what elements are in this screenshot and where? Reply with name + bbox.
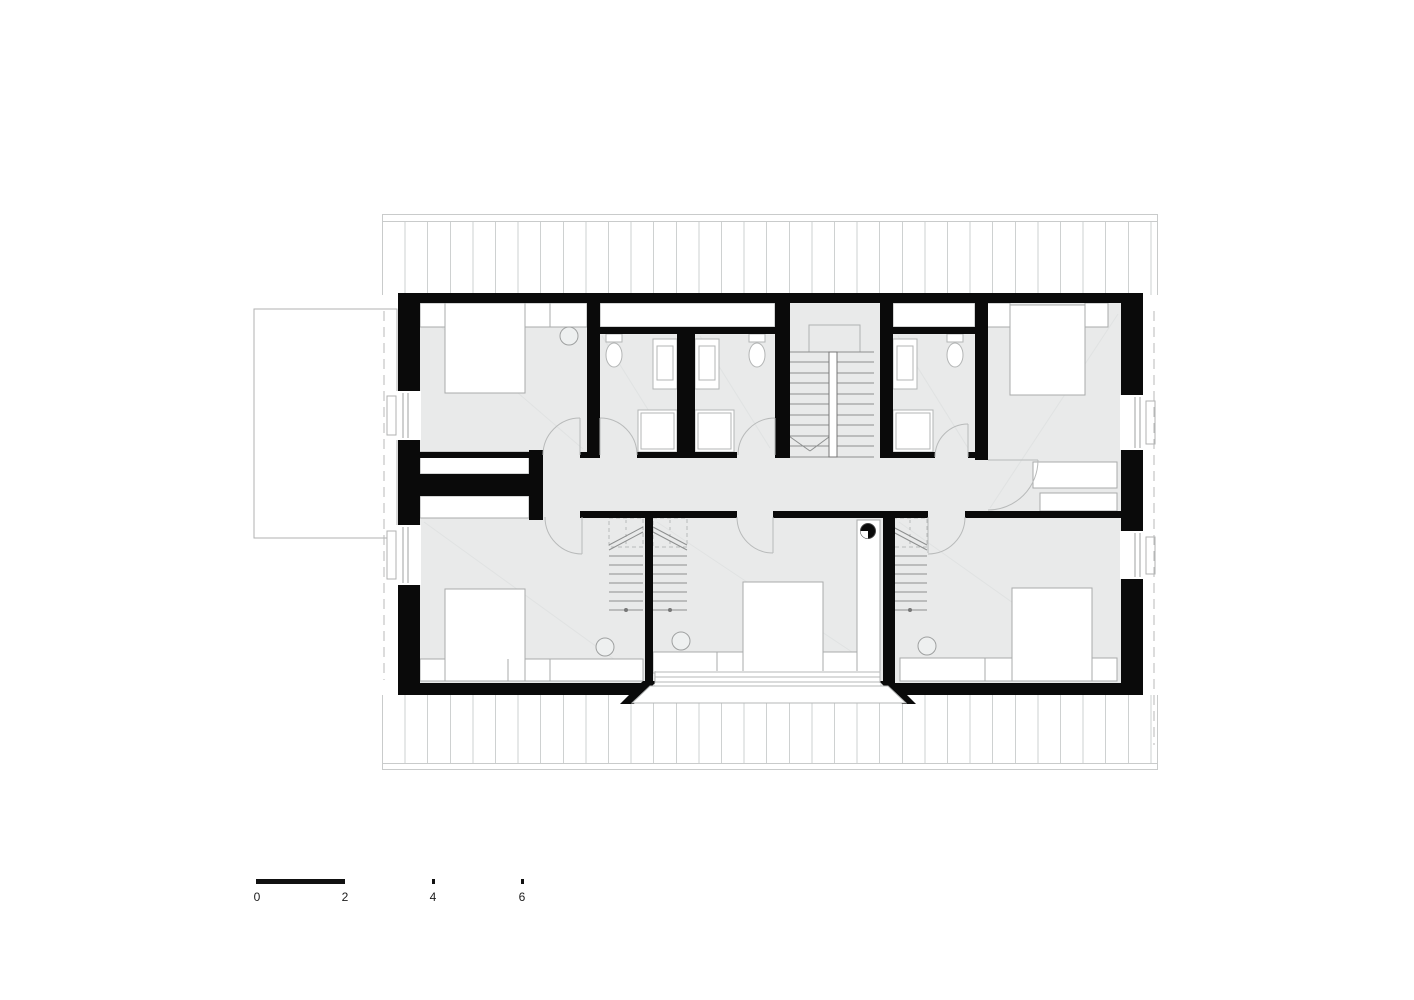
sink-basin <box>897 346 913 380</box>
wall-corridor <box>580 511 737 518</box>
shower-tray <box>698 413 731 449</box>
stair-handrail <box>829 352 837 457</box>
sideboard <box>1092 658 1117 681</box>
window-right-1 <box>1120 395 1155 450</box>
sink-basin <box>699 346 715 380</box>
desk <box>1033 462 1117 488</box>
scale-label-2: 2 <box>342 890 349 904</box>
wall-interior <box>975 303 988 460</box>
knee-wall-storage <box>600 303 775 327</box>
wall-bottom-right <box>891 683 1143 695</box>
scale-bar-segment <box>256 879 345 884</box>
wall-right <box>1121 577 1143 683</box>
lamp-symbol <box>672 632 690 650</box>
wall-interior <box>645 517 653 683</box>
bed <box>445 303 525 393</box>
wall-corridor <box>773 511 928 518</box>
wall-interior <box>883 517 895 683</box>
dresser <box>1040 493 1117 511</box>
sideboard <box>823 652 857 673</box>
sideboard <box>900 658 1012 681</box>
floor-plan-sheet: 0 2 4 6 <box>0 0 1414 1000</box>
dormer <box>632 671 906 703</box>
toilet-tank <box>749 334 765 342</box>
lamp-symbol <box>918 637 936 655</box>
shaft-symbol <box>861 524 876 539</box>
toilet-tank <box>947 334 963 342</box>
window-left-2 <box>387 525 421 585</box>
bed <box>1010 305 1085 395</box>
lamp-symbol <box>560 327 578 345</box>
sideboard <box>653 652 743 673</box>
shower-tray <box>896 413 930 449</box>
wall-interior <box>677 327 695 458</box>
toilet <box>947 343 963 367</box>
wall-corridor <box>968 452 988 458</box>
nightstand <box>1085 303 1108 327</box>
scale-tick <box>432 879 435 884</box>
wall-cross <box>398 474 533 496</box>
wall-stairwell-right <box>880 293 893 458</box>
lamp-symbol <box>596 638 614 656</box>
wall-corridor <box>580 452 600 458</box>
wall-bathroom-front <box>695 327 775 334</box>
bed <box>445 589 525 681</box>
shower-tray <box>641 413 674 449</box>
bed <box>743 582 823 673</box>
scale-label-6: 6 <box>519 890 526 904</box>
closet <box>420 496 529 518</box>
side-extension-outline <box>254 309 397 538</box>
wall-bathroom-front <box>600 327 677 334</box>
floor-plan-drawing: 0 2 4 6 <box>0 0 1414 1000</box>
duct-closet <box>857 520 880 673</box>
wall-right <box>1121 293 1143 397</box>
scale-label-4: 4 <box>430 890 437 904</box>
wall-corridor <box>775 452 790 458</box>
scale-label-0: 0 <box>254 890 261 904</box>
wall-corridor <box>420 452 543 458</box>
wall-top <box>398 293 1143 303</box>
dormer-outline <box>632 686 906 703</box>
wall-stairwell-left <box>775 293 790 458</box>
wall-left <box>398 293 420 393</box>
window-right-2 <box>1120 531 1155 579</box>
wall-corridor <box>965 511 1121 518</box>
wall-corridor <box>880 452 935 458</box>
wall-bathroom-front <box>893 327 975 334</box>
toilet <box>749 343 765 367</box>
nightstand <box>987 303 1010 327</box>
window-left-1 <box>387 391 421 440</box>
wall-corridor <box>637 452 737 458</box>
toilet <box>606 343 622 367</box>
wall-left <box>398 583 420 683</box>
bed <box>1012 588 1092 681</box>
scale-bar: 0 2 4 6 <box>254 879 526 904</box>
toilet-tank <box>606 334 622 342</box>
sink-basin <box>657 346 673 380</box>
wall-bottom-left <box>398 683 645 695</box>
scale-tick <box>521 879 524 884</box>
knee-wall-storage <box>893 303 975 327</box>
wall-interior <box>587 303 600 458</box>
wall-right <box>1121 448 1143 533</box>
